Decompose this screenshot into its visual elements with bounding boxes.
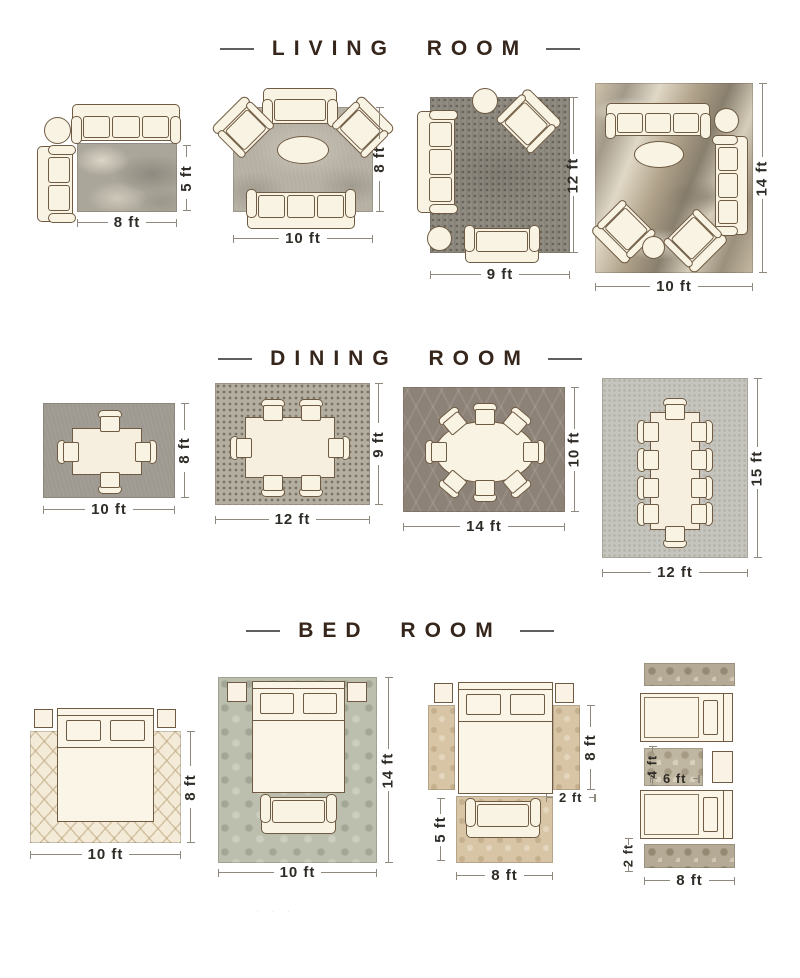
sofa-arm — [465, 798, 476, 827]
title-dash — [546, 48, 580, 50]
pillow — [303, 693, 337, 714]
foot-rug-height-label: 5 ft — [433, 816, 448, 843]
height-dimension: 10 ft — [566, 387, 582, 512]
dining-chair — [299, 399, 323, 421]
dining-chair — [691, 448, 713, 472]
seat-cushion — [287, 195, 314, 218]
height-label: 10 ft — [567, 432, 582, 468]
accent-rug-width-dimension: 6 ft — [650, 770, 696, 786]
seat-cushion — [718, 173, 738, 197]
headboard — [723, 790, 733, 839]
runner-length-label: 8 ft — [583, 734, 598, 761]
bed — [57, 708, 154, 822]
three-seat-sofa — [247, 192, 355, 229]
width-dimension: 10 ft — [233, 230, 373, 246]
chair-seat — [263, 405, 283, 421]
pillow — [703, 700, 718, 735]
title-dash — [220, 48, 254, 50]
dining-chair — [328, 436, 350, 460]
chair-seat — [328, 438, 344, 458]
chair-seat — [63, 442, 79, 462]
chair-seat — [643, 478, 659, 498]
chair-seat — [475, 480, 495, 496]
blanket-line — [252, 720, 345, 721]
dining-chair — [299, 475, 323, 497]
runner-width-dimension: 2 ft — [620, 838, 636, 872]
foot-rug-height-dimension: 5 ft — [432, 798, 448, 861]
dining-chair — [691, 420, 713, 444]
dining-table — [245, 417, 335, 478]
width-label: 8 ft — [485, 868, 524, 883]
three-seat-sofa — [715, 136, 748, 235]
sofa-arm — [429, 110, 458, 120]
headboard — [253, 682, 344, 689]
dining-table — [72, 428, 142, 475]
seat-cushion — [142, 116, 169, 139]
width-dimension: 8 ft — [644, 872, 735, 888]
pillow — [510, 694, 544, 715]
title-dash — [246, 630, 280, 632]
headboard — [723, 693, 733, 742]
chair-seat — [691, 422, 707, 442]
sofa-arm — [48, 145, 76, 155]
pillow — [260, 693, 294, 714]
nightstand — [555, 683, 574, 703]
pillow — [110, 720, 145, 741]
height-dimension: 8 ft — [182, 731, 198, 843]
seat-cushion — [718, 200, 738, 224]
width-label: 9 ft — [481, 267, 520, 282]
round-side-table — [44, 117, 71, 144]
section-title-text: BED ROOM — [298, 619, 502, 643]
seat-cushion — [673, 113, 699, 133]
bench — [466, 801, 540, 838]
chair-seat — [263, 475, 283, 491]
height-dimension: 14 ft — [754, 83, 770, 273]
seat-cushion — [112, 116, 139, 139]
seat-cushion — [272, 800, 325, 823]
sofa-arm — [326, 794, 337, 823]
height-dimension: 8 ft — [176, 403, 192, 498]
width-dimension: 10 ft — [43, 501, 175, 517]
section-title-text: LIVING ROOM — [272, 37, 528, 61]
dining-chair — [230, 436, 252, 460]
sofa-arm — [48, 213, 76, 223]
nightstand — [712, 751, 733, 783]
loveseat — [465, 228, 539, 263]
title-dash — [548, 358, 582, 360]
dining-chair — [663, 398, 687, 420]
nightstand — [434, 683, 453, 703]
seat-cushion — [617, 113, 643, 133]
height-dimension: 14 ft — [380, 677, 396, 863]
width-dimension: 8 ft — [77, 214, 177, 230]
nightstand — [347, 682, 367, 702]
three-seat-sofa — [606, 103, 710, 136]
title-dash — [218, 358, 252, 360]
width-label: 10 ft — [650, 279, 698, 294]
seat-cushion — [317, 195, 344, 218]
dining-room-title: DINING ROOM — [0, 347, 800, 371]
sofa-arm — [530, 798, 541, 827]
nightstand — [227, 682, 247, 702]
width-dimension: 10 ft — [30, 846, 181, 862]
chair-seat — [643, 422, 659, 442]
height-label: 8 ft — [177, 437, 192, 464]
width-label: 10 ft — [82, 847, 130, 862]
sofa-arm — [529, 225, 540, 252]
height-dimension: 15 ft — [749, 378, 765, 558]
bench — [261, 797, 336, 834]
dining-chair — [637, 502, 659, 526]
dining-chair — [98, 472, 122, 494]
round-side-table — [714, 108, 739, 133]
chair-seat — [691, 450, 707, 470]
width-dimension: 12 ft — [215, 511, 370, 527]
chair-seat — [431, 442, 447, 462]
dining-chair — [57, 440, 79, 464]
width-label: 14 ft — [460, 519, 508, 534]
oval-coffee-table — [634, 141, 684, 168]
dining-chair — [637, 476, 659, 500]
seat-cushion — [258, 195, 285, 218]
height-dimension: 9 ft — [370, 383, 386, 505]
dining-chair — [691, 502, 713, 526]
nightstand — [157, 709, 176, 728]
seat-cushion — [477, 804, 529, 827]
dining-chair — [637, 448, 659, 472]
sofa-arm — [345, 189, 356, 218]
living-rug-8x5 — [77, 143, 177, 212]
pillow — [66, 720, 101, 741]
bed — [458, 682, 553, 794]
sofa-arm — [260, 794, 271, 823]
blanket-line — [458, 721, 553, 722]
runner-width-label: 2 ft — [622, 843, 635, 867]
three-seat-sofa — [417, 111, 455, 213]
dining-chair — [523, 440, 545, 464]
height-dimension: 12 ft — [565, 97, 581, 253]
width-label: 8 ft — [108, 215, 147, 230]
round-side-table — [642, 236, 665, 259]
sofa-arm — [429, 204, 458, 214]
height-label: 14 ft — [755, 160, 770, 196]
width-label: 12 ft — [651, 565, 699, 580]
chair-seat — [301, 475, 321, 491]
height-label: 8 ft — [183, 774, 198, 801]
three-seat-sofa — [72, 104, 180, 141]
rug-size-guide: LIVING ROOM 8 ft 5 ft 10 ft 8 ft — [0, 0, 800, 978]
runner-rug — [644, 844, 735, 868]
sofa-arm — [170, 116, 181, 145]
chair-seat — [135, 442, 151, 462]
runner-rug — [553, 705, 580, 790]
height-dimension: 8 ft — [371, 107, 387, 212]
chair-seat — [691, 504, 707, 524]
height-label: 15 ft — [750, 450, 765, 486]
mattress — [644, 794, 699, 835]
accent-rug-width-label: 6 ft — [657, 772, 693, 785]
seat-cushion — [645, 113, 671, 133]
width-dimension: 9 ft — [430, 266, 570, 282]
width-label: 8 ft — [670, 873, 709, 888]
width-dimension: 14 ft — [403, 518, 565, 534]
dining-chair — [637, 420, 659, 444]
dining-chair — [691, 476, 713, 500]
width-label: 10 ft — [274, 865, 322, 880]
watermark-dots: · · · · — [256, 906, 311, 916]
width-dimension: 10 ft — [595, 278, 753, 294]
chair-seat — [301, 405, 321, 421]
chair-seat — [100, 472, 120, 488]
width-dimension: 12 ft — [602, 564, 748, 580]
chair-seat — [236, 438, 252, 458]
height-label: 9 ft — [371, 431, 386, 458]
width-dimension: 10 ft — [218, 864, 377, 880]
height-label: 8 ft — [372, 146, 387, 173]
width-dimension: 8 ft — [456, 867, 553, 883]
oval-coffee-table — [277, 136, 329, 164]
chair-seat — [523, 442, 539, 462]
runner-width-dimension: 2 ft — [546, 789, 592, 805]
nightstand — [34, 709, 53, 728]
runner-width-label: 2 ft — [553, 791, 589, 804]
seat-cushion — [48, 157, 70, 183]
sofa-arm — [605, 113, 616, 139]
dining-chair — [663, 526, 687, 548]
living-room-title: LIVING ROOM — [0, 37, 800, 61]
twin-bed — [640, 693, 733, 742]
sofa-arm — [464, 225, 475, 252]
pillow — [703, 797, 718, 832]
runner-length-dimension: 8 ft — [582, 705, 598, 790]
chair-seat — [665, 404, 685, 420]
seat-cushion — [274, 99, 326, 121]
mattress — [644, 697, 699, 738]
width-label: 10 ft — [279, 231, 327, 246]
chair-seat — [691, 478, 707, 498]
twin-bed — [640, 790, 733, 839]
round-side-table — [472, 88, 498, 114]
dining-chair — [261, 475, 285, 497]
seat-cushion — [48, 185, 70, 211]
dining-chair — [98, 410, 122, 432]
dining-chair — [473, 480, 497, 502]
seat-cushion — [429, 177, 452, 202]
chair-seat — [665, 526, 685, 542]
sofa-arm — [71, 116, 82, 145]
chair-seat — [643, 504, 659, 524]
seat-cushion — [83, 116, 110, 139]
runner-rug — [428, 705, 455, 790]
width-label: 10 ft — [85, 502, 133, 517]
width-label: 12 ft — [269, 512, 317, 527]
height-dimension: 5 ft — [178, 145, 194, 211]
height-label: 12 ft — [566, 157, 581, 193]
seat-cushion — [718, 147, 738, 171]
dining-chair — [425, 440, 447, 464]
loveseat — [263, 88, 337, 124]
headboard — [459, 683, 552, 690]
bed — [252, 681, 345, 793]
title-dash — [520, 630, 554, 632]
headboard — [58, 709, 153, 716]
runner-rug — [644, 663, 735, 686]
sofa-arm — [246, 189, 257, 218]
bed-room-title: BED ROOM — [0, 619, 800, 643]
dining-chair — [135, 440, 157, 464]
chair-seat — [643, 450, 659, 470]
seat-cushion — [476, 231, 528, 252]
seat-cushion — [429, 122, 452, 147]
height-label: 14 ft — [381, 752, 396, 788]
height-label: 5 ft — [179, 165, 194, 192]
loveseat — [37, 146, 73, 222]
seat-cushion — [429, 149, 452, 174]
section-title-text: DINING ROOM — [270, 347, 530, 371]
sofa-arm — [712, 135, 738, 145]
blanket-line — [57, 747, 154, 748]
chair-seat — [475, 409, 495, 425]
dining-chair — [261, 399, 285, 421]
dining-chair — [473, 403, 497, 425]
chair-seat — [100, 416, 120, 432]
round-side-table — [427, 226, 452, 251]
sofa-arm — [700, 113, 711, 139]
pillow — [466, 694, 500, 715]
